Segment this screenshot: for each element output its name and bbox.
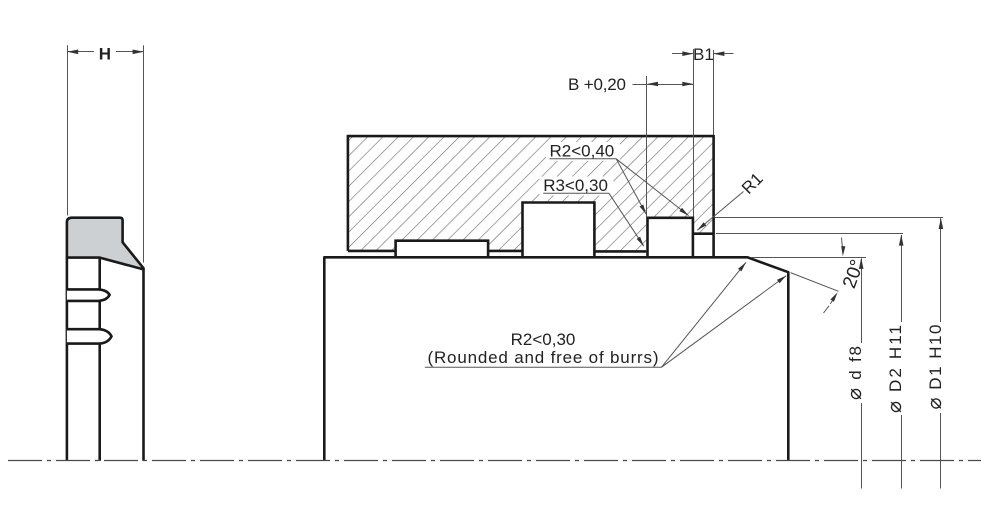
- svg-text:(Rounded and free of burrs): (Rounded and free of burrs): [428, 348, 659, 367]
- svg-text:⌀ D2 H11: ⌀ D2 H11: [884, 325, 906, 413]
- svg-text:B +0,20: B +0,20: [568, 75, 626, 94]
- svg-text:B1: B1: [693, 45, 714, 64]
- svg-text:R3<0,30: R3<0,30: [543, 176, 608, 195]
- svg-text:⌀ D1 H10: ⌀ D1 H10: [924, 325, 946, 410]
- svg-text:R2<0,30: R2<0,30: [511, 330, 576, 349]
- svg-text:H: H: [99, 44, 111, 63]
- svg-text:⌀ d f8: ⌀ d f8: [844, 346, 866, 400]
- svg-text:R2<0,40: R2<0,40: [550, 142, 615, 161]
